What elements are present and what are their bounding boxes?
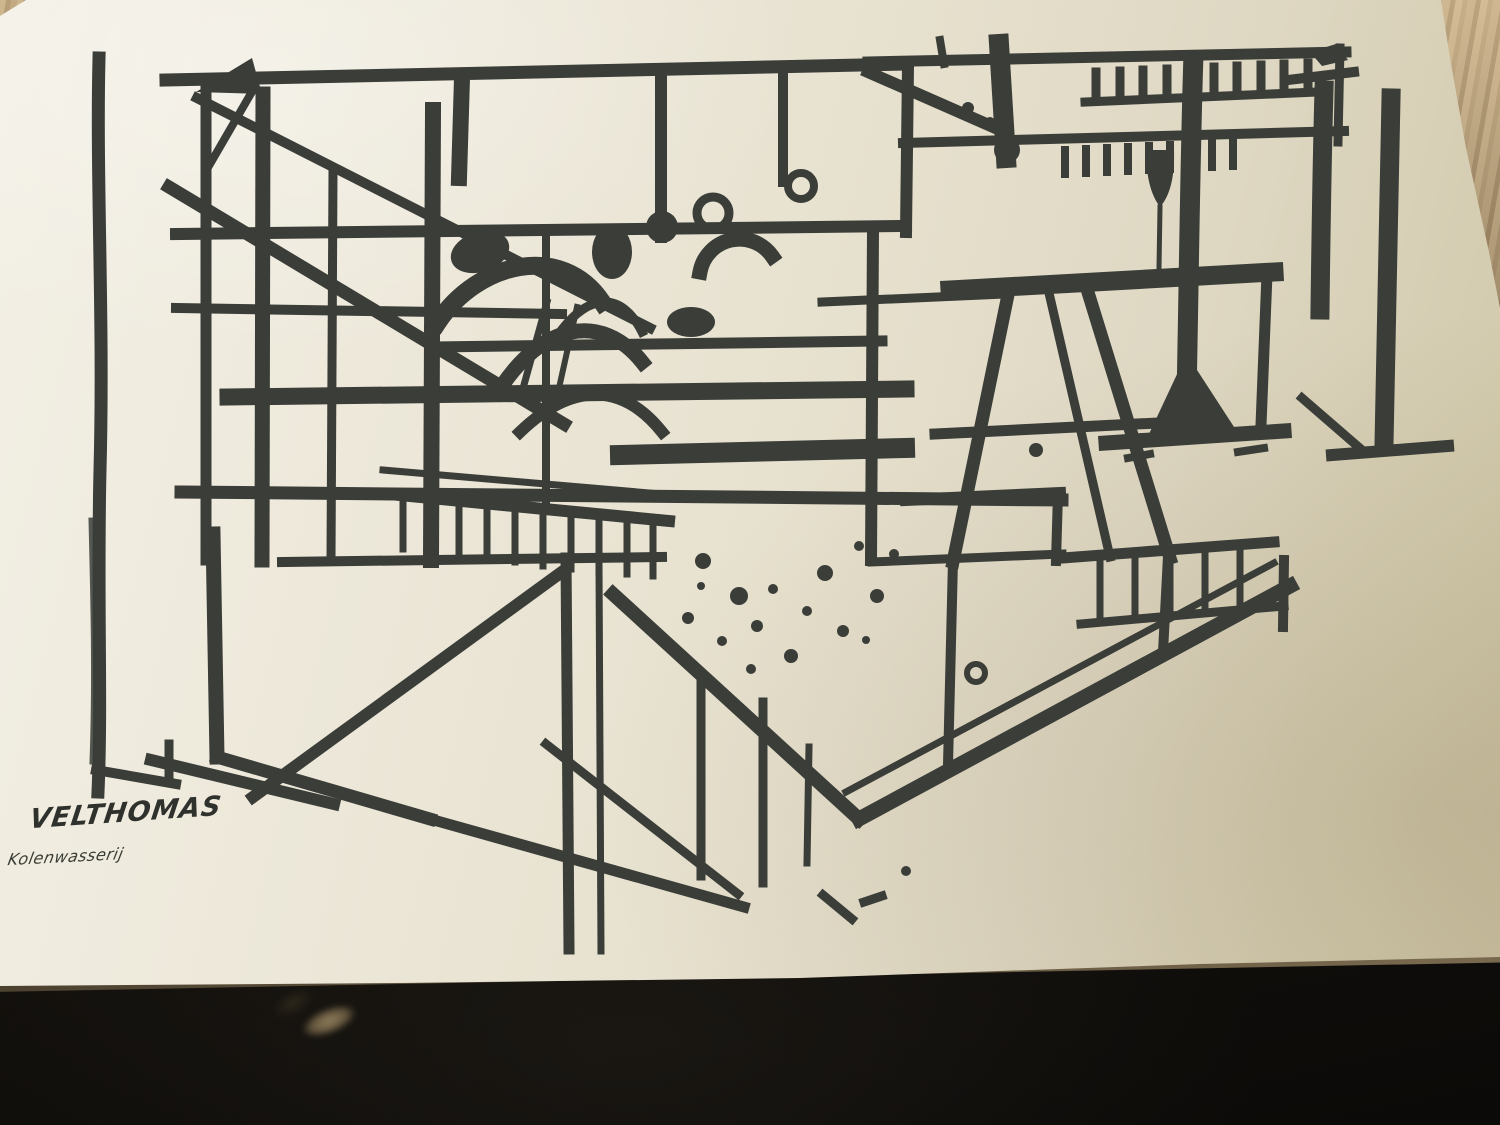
ink-drawing xyxy=(0,0,1500,1125)
paper-sheet: VELTHOMAS Kolenwasserij xyxy=(0,0,1500,1125)
photo: VELTHOMAS Kolenwasserij xyxy=(0,0,1500,1125)
